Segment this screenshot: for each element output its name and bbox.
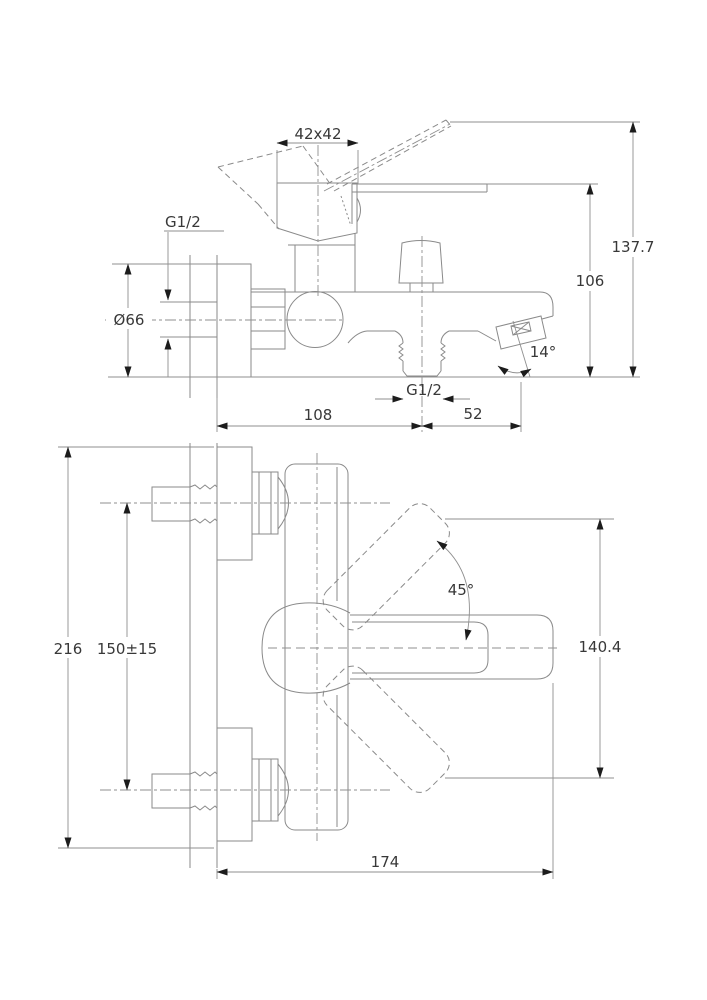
supply-pipes (152, 485, 217, 810)
dim-label-escutcheon-diameter: Ø66 (114, 311, 145, 329)
faucet-dimension-drawing: 42x42 G1/2 Ø66 137.7 106 14° G1/2 108 52 (0, 0, 707, 1000)
dim-label-outlet-to-spout: 52 (463, 405, 482, 423)
dim-label-connection-centres: 150±15 (97, 640, 157, 658)
side-view: 42x42 G1/2 Ø66 137.7 106 14° G1/2 108 52 (105, 120, 661, 432)
lever-handle-closed (352, 184, 487, 224)
connection-nut (251, 289, 285, 349)
dim-label-handle-span: 140.4 (579, 638, 622, 656)
mixer-body (285, 464, 348, 830)
plan-faucet-body (217, 447, 553, 841)
supply-pipe-top (152, 487, 190, 521)
dim-label-shower-outlet-thread: G1/2 (406, 381, 442, 399)
escutcheon-flange (217, 264, 251, 377)
dim-label-overall-width: 216 (54, 640, 83, 658)
cartridge-cap (277, 183, 357, 241)
spout-body (251, 292, 553, 343)
dim-label-spout-angle: 14° (530, 343, 557, 361)
spout-outline (350, 615, 553, 679)
wall-inlet-hole (189, 303, 218, 336)
diverter-knob (399, 241, 443, 293)
dim-arc-14 (498, 366, 531, 373)
dim-label-body-height: 106 (576, 272, 605, 290)
ball-joint (287, 292, 343, 348)
aerator-axis (513, 321, 530, 377)
plan-centerlines (100, 453, 560, 841)
dim-label-overall-height: 137.7 (612, 238, 655, 256)
dim-label-handle-swing-angle: 45° (448, 581, 475, 599)
dim-label-wall-inlet-thread: G1/2 (165, 213, 201, 231)
plan-labels: 216 150±15 45° 140.4 174 (54, 581, 622, 871)
side-centerlines (105, 124, 450, 432)
escutcheon-top (217, 447, 252, 560)
escutcheon-bottom (217, 728, 252, 841)
dim-label-wall-to-spout-tip: 174 (371, 853, 400, 871)
plan-wall-section (189, 443, 218, 868)
supply-pipe-bottom (152, 774, 190, 808)
lever-swing-down-dashed (317, 660, 455, 798)
drawing-page: 42x42 G1/2 Ø66 137.7 106 14° G1/2 108 52 (0, 0, 707, 1000)
dim-label-wall-to-outlet: 108 (304, 406, 333, 424)
dim-label-cartridge-size: 42x42 (294, 125, 341, 143)
plan-view: 216 150±15 45° 140.4 174 (48, 443, 626, 879)
